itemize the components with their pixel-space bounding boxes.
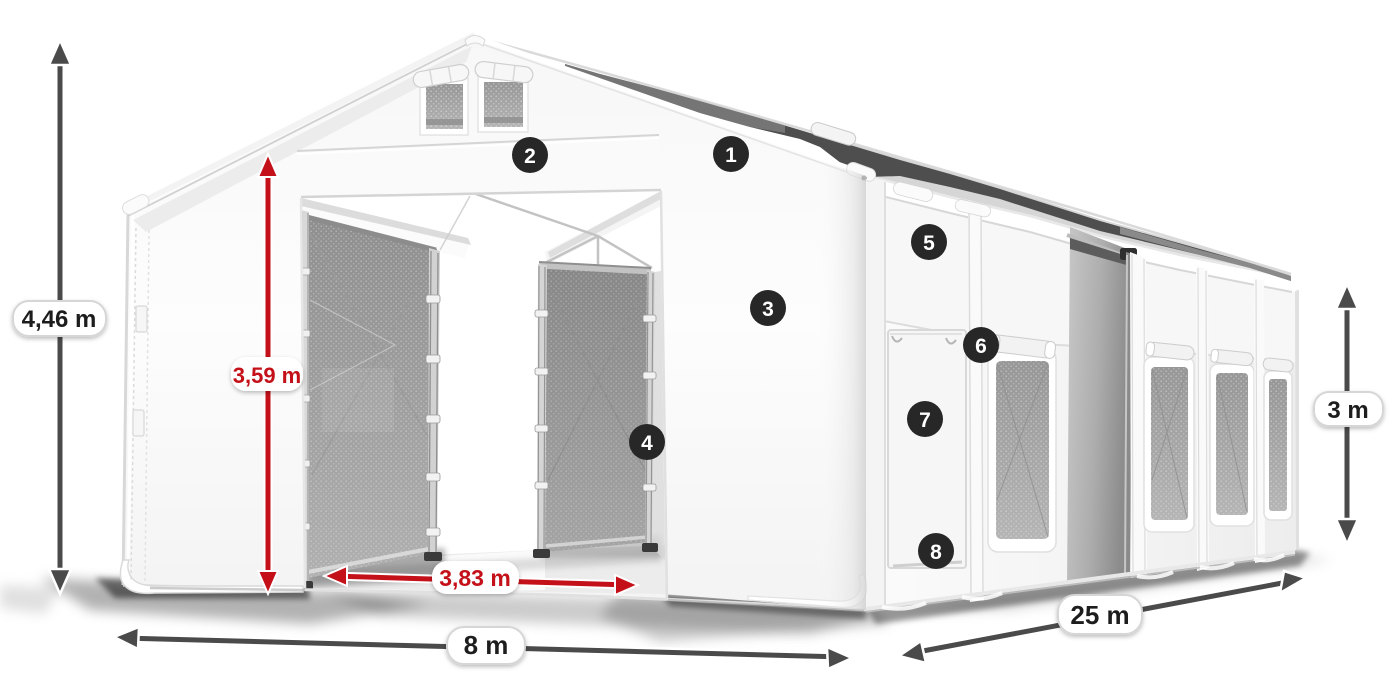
svg-text:8 m: 8 m bbox=[464, 630, 509, 660]
svg-text:4: 4 bbox=[641, 432, 653, 455]
svg-text:5: 5 bbox=[923, 232, 935, 255]
svg-text:2: 2 bbox=[524, 145, 536, 168]
svg-text:3,83 m: 3,83 m bbox=[439, 565, 511, 591]
svg-text:1: 1 bbox=[725, 144, 737, 167]
svg-text:3,59 m: 3,59 m bbox=[233, 363, 302, 388]
svg-text:7: 7 bbox=[919, 409, 931, 432]
svg-text:25 m: 25 m bbox=[1070, 600, 1129, 630]
svg-text:4,46 m: 4,46 m bbox=[22, 306, 97, 333]
svg-text:8: 8 bbox=[930, 541, 942, 564]
svg-text:3: 3 bbox=[762, 298, 774, 321]
svg-text:3 m: 3 m bbox=[1327, 397, 1368, 424]
svg-text:6: 6 bbox=[975, 335, 987, 358]
